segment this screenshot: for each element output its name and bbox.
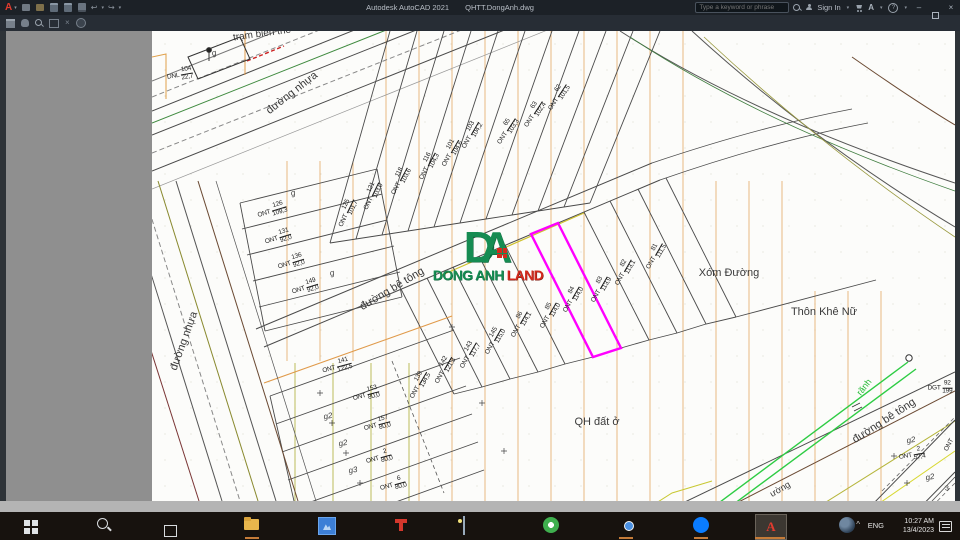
autodesk-a-icon[interactable]: A — [868, 3, 874, 12]
undo-icon[interactable]: ↩ — [91, 4, 98, 12]
zalo-icon[interactable] — [693, 517, 709, 533]
viewport-frame-icon[interactable] — [49, 19, 59, 28]
window-title: Autodesk AutoCAD 2021 QHTT.DongAnh.dwg — [300, 3, 600, 12]
left-panel-edge — [0, 31, 6, 501]
new-file-icon[interactable] — [22, 4, 30, 11]
windows-taskbar: A ^ ENG 10:27 AM 13/4/2023 — [0, 512, 960, 540]
chevron-down-icon[interactable]: ▾ — [904, 5, 907, 11]
running-indicator — [245, 537, 259, 539]
start-icon[interactable] — [24, 520, 40, 536]
close-button[interactable]: × — [945, 0, 957, 15]
user-icon[interactable] — [805, 4, 813, 12]
save-as-icon[interactable] — [64, 3, 72, 12]
area-label: g2 — [338, 438, 348, 448]
picture-app-icon[interactable] — [463, 516, 465, 535]
pan-hand-icon[interactable] — [21, 19, 29, 27]
print-icon[interactable] — [78, 3, 86, 12]
hidden-icons-chevron[interactable]: ^ — [856, 520, 860, 529]
autocad-app-logo[interactable]: A — [5, 3, 12, 13]
area-label: Xóm Đường — [699, 267, 759, 279]
dong-anh-land-logo: DA DONG ANHLAND — [430, 229, 546, 283]
area-label: g2 — [925, 472, 935, 482]
zoom-magnifier-icon[interactable] — [35, 19, 43, 27]
task-view-icon[interactable] — [164, 517, 180, 533]
google-earth-icon[interactable] — [839, 517, 855, 533]
running-indicator — [619, 537, 633, 539]
chevron-down-icon[interactable]: ▾ — [847, 5, 850, 11]
photos-app-icon[interactable] — [318, 517, 336, 535]
sign-in-button[interactable]: Sign In — [817, 3, 840, 12]
minimize-button[interactable]: – — [913, 0, 925, 15]
language-indicator[interactable]: ENG — [868, 521, 884, 530]
right-panel-edge — [955, 31, 960, 501]
toolbar-dropdown-icon[interactable]: ▾ — [119, 5, 122, 11]
open-folder-icon[interactable] — [36, 4, 44, 11]
running-indicator — [694, 537, 708, 539]
chevron-down-icon[interactable]: ▾ — [14, 5, 17, 11]
save-icon[interactable] — [50, 3, 58, 12]
drawing-canvas[interactable]: DA DONG ANHLAND trạm biến thếđường nhựađ… — [152, 31, 955, 501]
titlebar-right-cluster: Sign In ▾ A ▾ ? ▾ – × — [695, 0, 957, 15]
autocad-workspace: DA DONG ANHLAND trạm biến thếđường nhựađ… — [0, 31, 960, 501]
plot-label: DGT92199 — [928, 381, 953, 396]
redo-icon[interactable]: ↪ — [108, 4, 115, 12]
logo-letter-a: A — [481, 229, 513, 266]
document-title: QHTT.DongAnh.dwg — [465, 3, 534, 12]
help-icon[interactable]: ? — [888, 3, 898, 13]
toolbar-row: × — [0, 15, 960, 31]
undo-dropdown-icon[interactable]: ▾ — [101, 5, 104, 11]
action-center-icon[interactable] — [939, 521, 952, 532]
statusbar-strip — [0, 501, 960, 512]
area-label: 3 — [945, 486, 949, 493]
desktop: { "titlebar": { "app_logo": "A", "app_ti… — [0, 0, 960, 540]
logo-window-grid — [497, 248, 508, 259]
area-label: g2 — [906, 435, 916, 445]
erase-icon[interactable]: × — [65, 19, 70, 27]
green-ring-app-icon[interactable] — [543, 517, 559, 533]
running-indicator-active — [755, 537, 785, 539]
logo-monogram: DA — [430, 229, 546, 269]
area-label: g3 — [348, 465, 358, 475]
tray-date: 13/4/2023 — [903, 527, 934, 534]
tray-time: 10:27 AM — [904, 518, 934, 525]
help-circle-icon[interactable] — [76, 18, 86, 28]
titlebar: A ▾ ↩ ▾ ↪ ▾ Autodesk AutoCAD 2021 QHTT.D… — [0, 0, 960, 15]
area-label: g2 — [323, 411, 333, 421]
search-icon[interactable] — [793, 4, 801, 12]
app-title: Autodesk AutoCAD 2021 — [366, 3, 449, 12]
clock[interactable]: 10:27 AM 13/4/2023 — [903, 517, 934, 535]
print-icon[interactable] — [6, 19, 15, 28]
cart-icon[interactable] — [855, 4, 864, 12]
area-label: QH đất ở — [574, 416, 619, 428]
chevron-down-icon[interactable]: ▾ — [880, 5, 883, 11]
search-input[interactable] — [695, 2, 789, 13]
area-label: Thôn Khê Nữ — [791, 306, 857, 318]
